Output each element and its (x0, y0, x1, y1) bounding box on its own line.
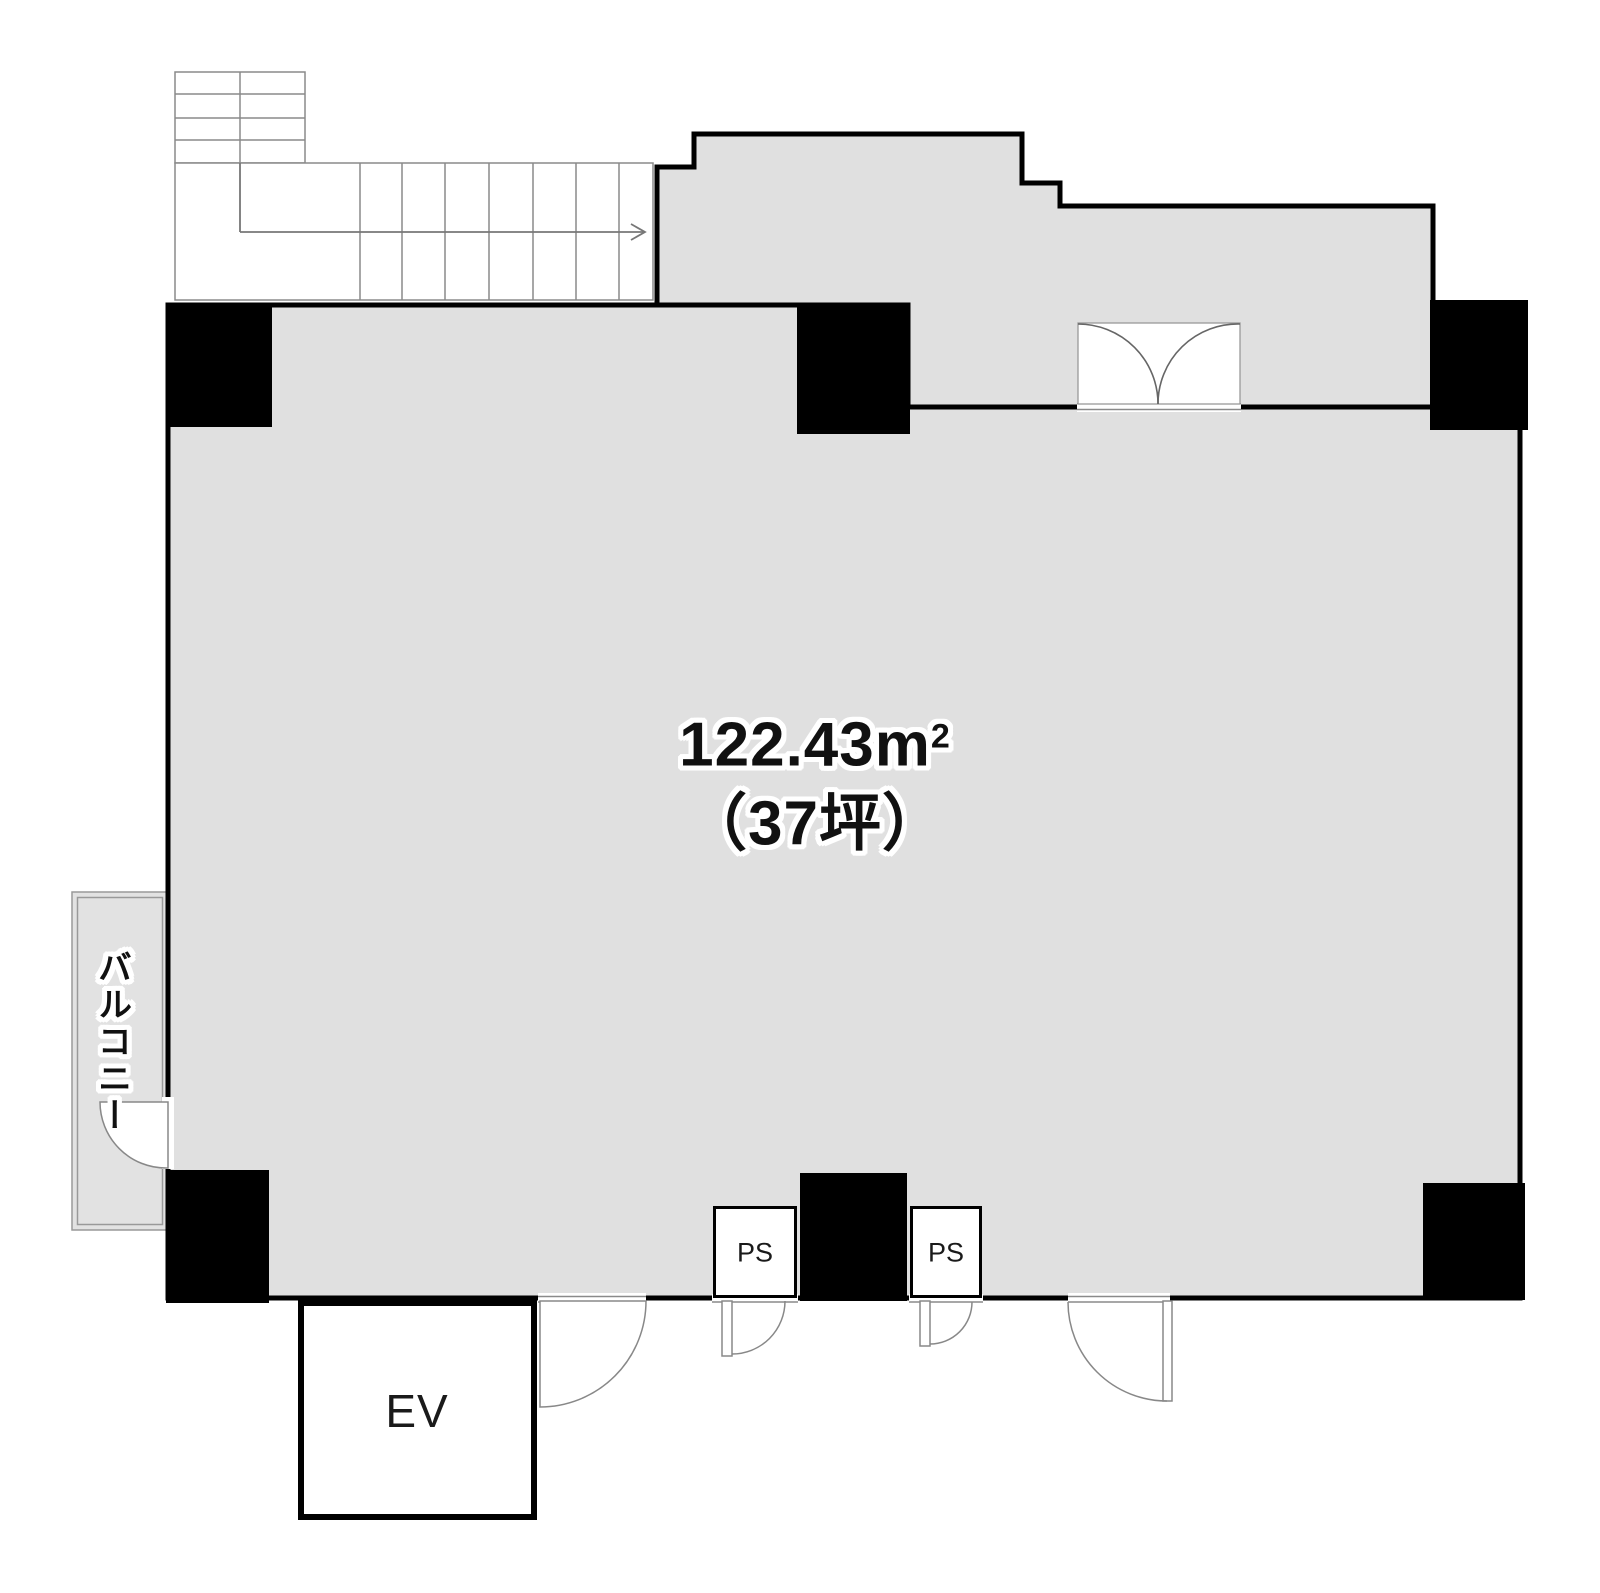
ps-left-door-swing-icon (722, 1301, 785, 1356)
column-southwest (166, 1170, 269, 1303)
column-south-middle (800, 1173, 907, 1301)
column-southeast (1423, 1183, 1525, 1300)
elevator-label: EV (385, 1384, 448, 1438)
pipe-shaft-right-label: PS (928, 1238, 964, 1269)
column-northeast (1430, 300, 1528, 430)
stairs (175, 72, 653, 300)
area-square-meters: 122.43m2 (679, 711, 951, 780)
column-northwest (166, 303, 272, 427)
floor-plan: 122.43m2 （37坪） バルコニー EV PS PS (0, 0, 1600, 1593)
bottom-right-door-swing-icon (1068, 1301, 1172, 1401)
area-label: 122.43m2 （37坪） (679, 706, 951, 865)
column-north-middle (797, 303, 910, 434)
bottom-right-door-opening (1068, 1293, 1170, 1305)
ev-lobby-door-swing-icon (540, 1301, 646, 1407)
ps-right-door-swing-icon (920, 1301, 972, 1346)
balcony-label: バルコニー (88, 950, 137, 1135)
entrance-double-door-icon (1078, 323, 1240, 404)
area-tsubo: （37坪） (685, 790, 945, 859)
pipe-shaft-left-label: PS (737, 1238, 773, 1269)
